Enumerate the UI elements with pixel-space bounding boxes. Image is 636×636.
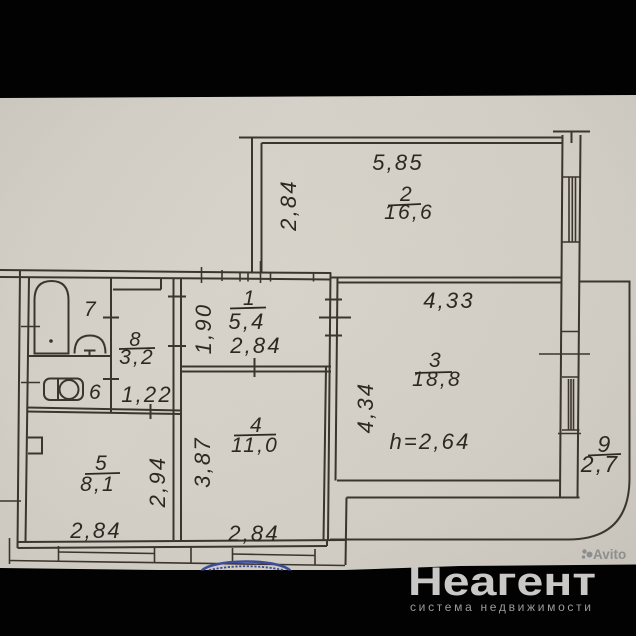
svg-text:система недвижимости: система недвижимости <box>410 600 593 614</box>
svg-text:7: 7 <box>84 298 98 321</box>
svg-text:1: 1 <box>243 287 257 310</box>
svg-text:2,94: 2,94 <box>145 456 170 509</box>
svg-text:4,33: 4,33 <box>423 288 475 313</box>
svg-text:Avito: Avito <box>593 547 626 562</box>
svg-text:5,4: 5,4 <box>228 309 265 334</box>
svg-text:5,85: 5,85 <box>372 150 424 175</box>
svg-text:6: 6 <box>89 381 103 404</box>
svg-text:h=2,64: h=2,64 <box>389 429 470 454</box>
svg-text:11,0: 11,0 <box>231 434 279 457</box>
svg-text:2,84: 2,84 <box>227 521 280 546</box>
svg-text:2,84: 2,84 <box>276 179 301 232</box>
svg-text:2,84: 2,84 <box>229 333 282 358</box>
svg-text:8,1: 8,1 <box>80 473 116 496</box>
svg-text:18,8: 18,8 <box>412 368 462 391</box>
svg-text:3,2: 3,2 <box>119 346 155 369</box>
svg-text:16,6: 16,6 <box>384 201 434 224</box>
svg-text:5: 5 <box>95 452 109 475</box>
svg-text:1,22: 1,22 <box>121 382 173 407</box>
svg-text:2,7: 2,7 <box>580 451 620 477</box>
svg-text:Неагент: Неагент <box>408 560 596 604</box>
svg-text:2,84: 2,84 <box>69 518 122 543</box>
svg-text:3,87: 3,87 <box>190 436 215 488</box>
svg-text:1,90: 1,90 <box>191 303 216 355</box>
svg-text:4,34: 4,34 <box>353 382 378 434</box>
